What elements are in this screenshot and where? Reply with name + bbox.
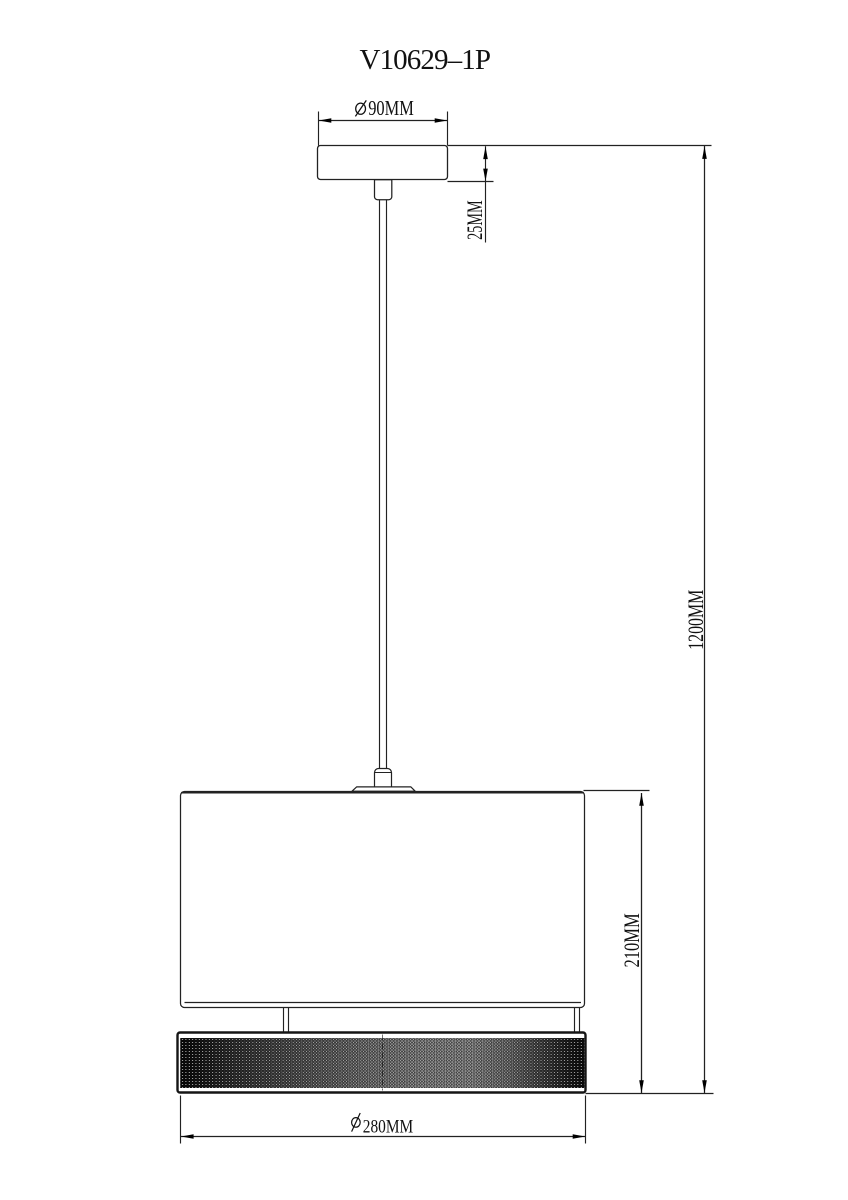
svg-text:210MM: 210MM: [619, 913, 644, 967]
svg-text:280MM: 280MM: [363, 1116, 413, 1137]
svg-text:1200MM: 1200MM: [683, 590, 708, 650]
svg-text:90MM: 90MM: [368, 97, 414, 120]
svg-text:V10629–1P: V10629–1P: [360, 44, 492, 76]
svg-text:25MM: 25MM: [462, 200, 487, 240]
